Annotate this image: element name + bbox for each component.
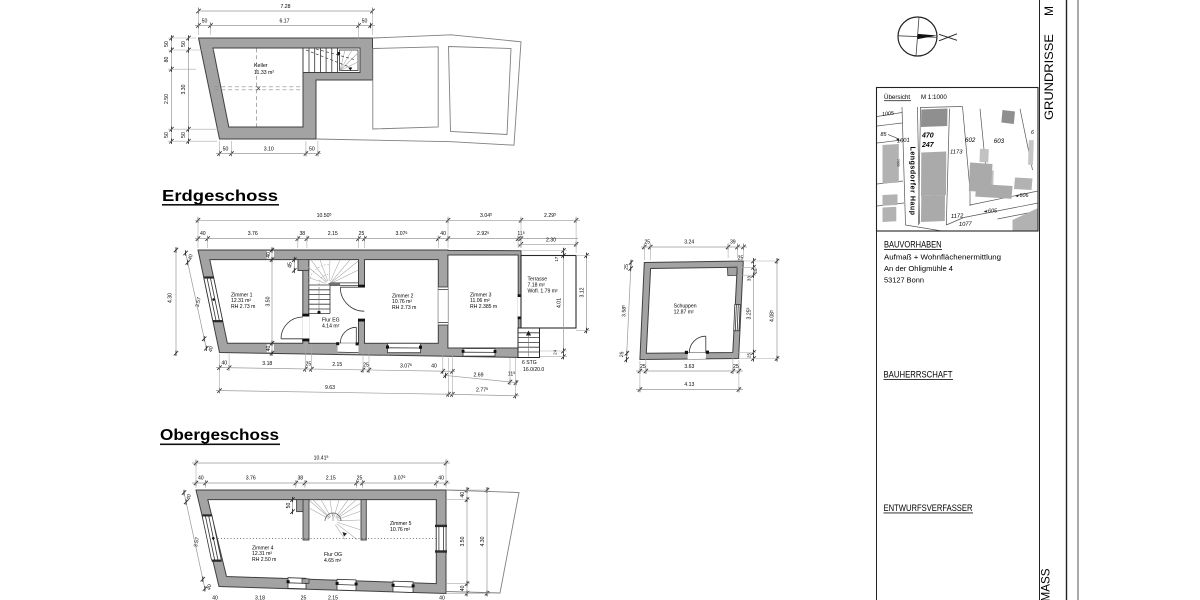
svg-text:MASS: MASS: [1039, 569, 1053, 600]
svg-text:2.15: 2.15: [328, 596, 338, 600]
svg-text:3.10: 3.10: [264, 146, 274, 152]
svg-text:603: 603: [994, 138, 1005, 145]
svg-text:53127 Bonn: 53127 Bonn: [884, 276, 924, 285]
svg-text:3.76: 3.76: [248, 231, 258, 237]
svg-text:10.415: 10.415: [314, 455, 329, 461]
svg-text:Obergeschoss: Obergeschoss: [160, 427, 279, 444]
svg-text:9.63: 9.63: [325, 385, 335, 391]
svg-text:40: 40: [431, 364, 437, 370]
svg-text:10.76 m²: 10.76 m²: [390, 527, 410, 533]
svg-text:40: 40: [198, 476, 204, 482]
svg-text:An der Ohligmühle 4: An der Ohligmühle 4: [884, 264, 953, 273]
svg-text:3.30: 3.30: [181, 84, 187, 94]
svg-text:602: 602: [965, 137, 976, 144]
svg-text:Erdgeschoss: Erdgeschoss: [162, 188, 278, 205]
svg-text:11.33 m²: 11.33 m²: [254, 70, 274, 76]
svg-text:40: 40: [266, 252, 272, 258]
svg-text:3.50: 3.50: [265, 296, 271, 306]
svg-text:38: 38: [299, 231, 305, 237]
svg-text:3.18: 3.18: [262, 361, 272, 367]
svg-text:25: 25: [753, 268, 758, 274]
svg-text:4.65 m²: 4.65 m²: [324, 558, 342, 564]
svg-text:606: 606: [1020, 193, 1029, 199]
svg-text:GRUNDRISSE: GRUNDRISSE: [1042, 34, 1056, 120]
svg-text:38: 38: [297, 476, 303, 482]
svg-text:3.63: 3.63: [684, 364, 694, 370]
svg-text:25: 25: [306, 362, 312, 368]
svg-text:25: 25: [357, 476, 363, 482]
svg-text:247: 247: [921, 142, 935, 149]
svg-text:Aufmaß + Wohnflächenermittlung: Aufmaß + Wohnflächenermittlung: [884, 253, 1001, 262]
svg-text:40: 40: [438, 476, 444, 482]
svg-text:50: 50: [164, 41, 170, 47]
svg-text:50: 50: [164, 132, 170, 138]
svg-text:80: 80: [164, 57, 170, 63]
svg-text:3.18: 3.18: [255, 596, 265, 600]
svg-text:2.15: 2.15: [332, 362, 342, 368]
svg-text:40: 40: [221, 360, 227, 366]
svg-text:4.13: 4.13: [684, 382, 694, 388]
svg-text:25: 25: [644, 240, 650, 246]
svg-text:RH 2.385 m: RH 2.385 m: [470, 304, 497, 310]
svg-text:25: 25: [624, 264, 630, 270]
svg-text:M: M: [1042, 6, 1056, 16]
svg-text:6: 6: [1031, 130, 1034, 136]
svg-text:4.01: 4.01: [556, 298, 562, 308]
svg-text:1173: 1173: [950, 150, 963, 156]
svg-text:45: 45: [288, 262, 294, 268]
svg-text:BAUHERRSCHAFT: BAUHERRSCHAFT: [884, 370, 953, 381]
svg-text:7.28: 7.28: [280, 4, 290, 10]
svg-text:6.17: 6.17: [279, 18, 289, 24]
svg-text:2.69: 2.69: [473, 372, 483, 378]
svg-text:1077: 1077: [959, 221, 973, 228]
svg-text:3.24: 3.24: [684, 240, 694, 246]
svg-text:M 1:1000: M 1:1000: [921, 94, 947, 101]
svg-text:6 STG: 6 STG: [522, 360, 537, 366]
svg-text:1172: 1172: [951, 213, 965, 220]
svg-text:ENTWURFSVERFASSER: ENTWURFSVERFASSER: [884, 503, 973, 514]
svg-text:40: 40: [440, 231, 446, 237]
svg-text:40: 40: [200, 231, 206, 237]
svg-text:3.12: 3.12: [579, 287, 585, 297]
svg-text:Lengsdorfer Haup: Lengsdorfer Haup: [909, 147, 916, 216]
svg-text:40: 40: [460, 492, 466, 498]
svg-text:25: 25: [363, 363, 369, 369]
svg-text:2.15: 2.15: [326, 476, 336, 482]
svg-text:10.505: 10.505: [317, 213, 332, 219]
svg-text:50: 50: [181, 41, 187, 47]
svg-text:RH 2.73 m: RH 2.73 m: [392, 305, 416, 311]
svg-text:50: 50: [362, 18, 368, 24]
svg-text:RH 2.73 m: RH 2.73 m: [231, 304, 255, 310]
svg-text:50: 50: [202, 18, 208, 24]
svg-text:25: 25: [619, 351, 625, 357]
svg-text:24: 24: [552, 349, 557, 355]
svg-text:12.87 m²: 12.87 m²: [674, 310, 694, 316]
svg-text:39: 39: [730, 240, 736, 246]
svg-text:50: 50: [309, 146, 315, 152]
svg-text:3.50: 3.50: [460, 536, 466, 546]
svg-text:BAUVORHABEN: BAUVORHABEN: [884, 240, 942, 251]
svg-text:25: 25: [738, 256, 744, 262]
svg-text:17: 17: [554, 256, 559, 262]
svg-text:25: 25: [733, 364, 739, 370]
svg-text:2.50: 2.50: [164, 94, 170, 104]
svg-text:RH 2.50 m: RH 2.50 m: [252, 557, 276, 563]
svg-text:50: 50: [223, 146, 229, 152]
svg-text:25: 25: [640, 364, 646, 370]
svg-text:605: 605: [988, 209, 998, 215]
svg-text:40: 40: [212, 596, 218, 600]
svg-text:Schuppen: Schuppen: [674, 304, 697, 310]
svg-text:2.15: 2.15: [328, 231, 338, 237]
svg-text:4.30: 4.30: [480, 536, 486, 546]
svg-text:50: 50: [286, 503, 292, 509]
svg-text:40: 40: [460, 585, 466, 591]
svg-text:40: 40: [266, 346, 272, 352]
svg-text:25: 25: [359, 231, 365, 237]
svg-text:2.30: 2.30: [546, 238, 556, 244]
svg-text:470: 470: [921, 133, 934, 140]
svg-text:4.30: 4.30: [168, 293, 174, 303]
svg-text:85: 85: [881, 132, 888, 138]
svg-text:7003: 7003: [896, 159, 900, 167]
svg-text:16.0/20.0: 16.0/20.0: [523, 367, 544, 373]
svg-text:4.14 m²: 4.14 m²: [322, 323, 340, 329]
svg-text:33: 33: [747, 276, 752, 282]
svg-text:Wofl. 1.79 m²: Wofl. 1.79 m²: [528, 289, 558, 295]
svg-text:Keller: Keller: [254, 63, 268, 69]
svg-text:3.76: 3.76: [246, 476, 256, 482]
svg-text:25: 25: [747, 353, 752, 359]
svg-text:Übersicht: Übersicht: [884, 94, 910, 101]
svg-text:25: 25: [301, 596, 307, 600]
svg-text:40: 40: [439, 596, 445, 600]
svg-text:50: 50: [181, 132, 187, 138]
